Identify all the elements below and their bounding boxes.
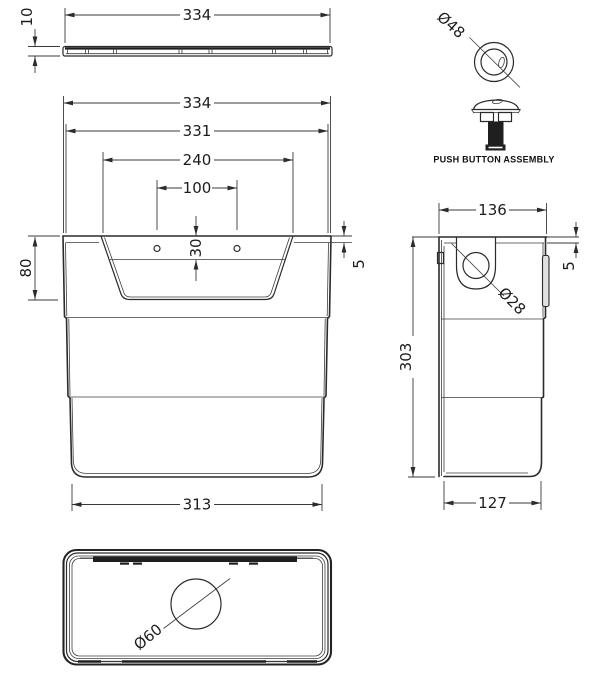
- plan-outline: [64, 550, 332, 665]
- plan-top-seal: [93, 557, 297, 563]
- dim-front-inner-width: 331: [183, 122, 212, 140]
- front-fixing-hole-right: [234, 246, 240, 252]
- front-fixing-hole-left: [154, 246, 160, 252]
- dim-button-diameter: Ø48: [433, 8, 468, 42]
- technical-drawing-canvas: 334 10 Ø48: [0, 0, 600, 674]
- push-button-detail: Ø48 PUSH BUTTON ASSEMBLY: [433, 8, 554, 165]
- plan-view: Ø60: [64, 550, 332, 665]
- push-button-assembly-icon: [472, 99, 521, 151]
- dim-front-base-width: 313: [183, 496, 212, 514]
- lid-profile-view: 334 10: [18, 6, 332, 73]
- dim-side-rim-lip: 5: [560, 261, 578, 271]
- side-front-lug: [543, 256, 550, 307]
- dim-front-recess-step: 30: [187, 238, 205, 257]
- front-view: 334 331 240 100 30 80: [17, 94, 368, 514]
- dim-front-overall-width: 334: [183, 94, 212, 112]
- cistern-dimension-drawing: 334 10 Ø48: [0, 0, 600, 674]
- dim-side-base-depth: 127: [478, 494, 507, 512]
- dim-side-height: 303: [397, 343, 415, 372]
- dim-plan-flush-valve-diameter: Ø60: [130, 620, 165, 653]
- dim-front-rim-lip: 5: [350, 259, 368, 269]
- dim-front-recess-depth: 80: [17, 258, 35, 277]
- push-button-caption: PUSH BUTTON ASSEMBLY: [433, 155, 554, 165]
- dim-side-top-depth: 136: [478, 201, 507, 219]
- dim-lid-width: 334: [183, 6, 212, 24]
- dim-side-inlet-diameter: Ø28: [495, 284, 530, 319]
- front-body-outline: [63, 236, 331, 477]
- side-inlet-hole: [463, 253, 489, 279]
- button-stem: [488, 122, 504, 145]
- side-view: 136 Ø28 5 303 127: [397, 201, 579, 512]
- dim-front-hole-centres: 100: [183, 179, 212, 197]
- dim-front-recess-width: 240: [183, 151, 212, 169]
- dim-lid-thickness: 10: [18, 7, 36, 26]
